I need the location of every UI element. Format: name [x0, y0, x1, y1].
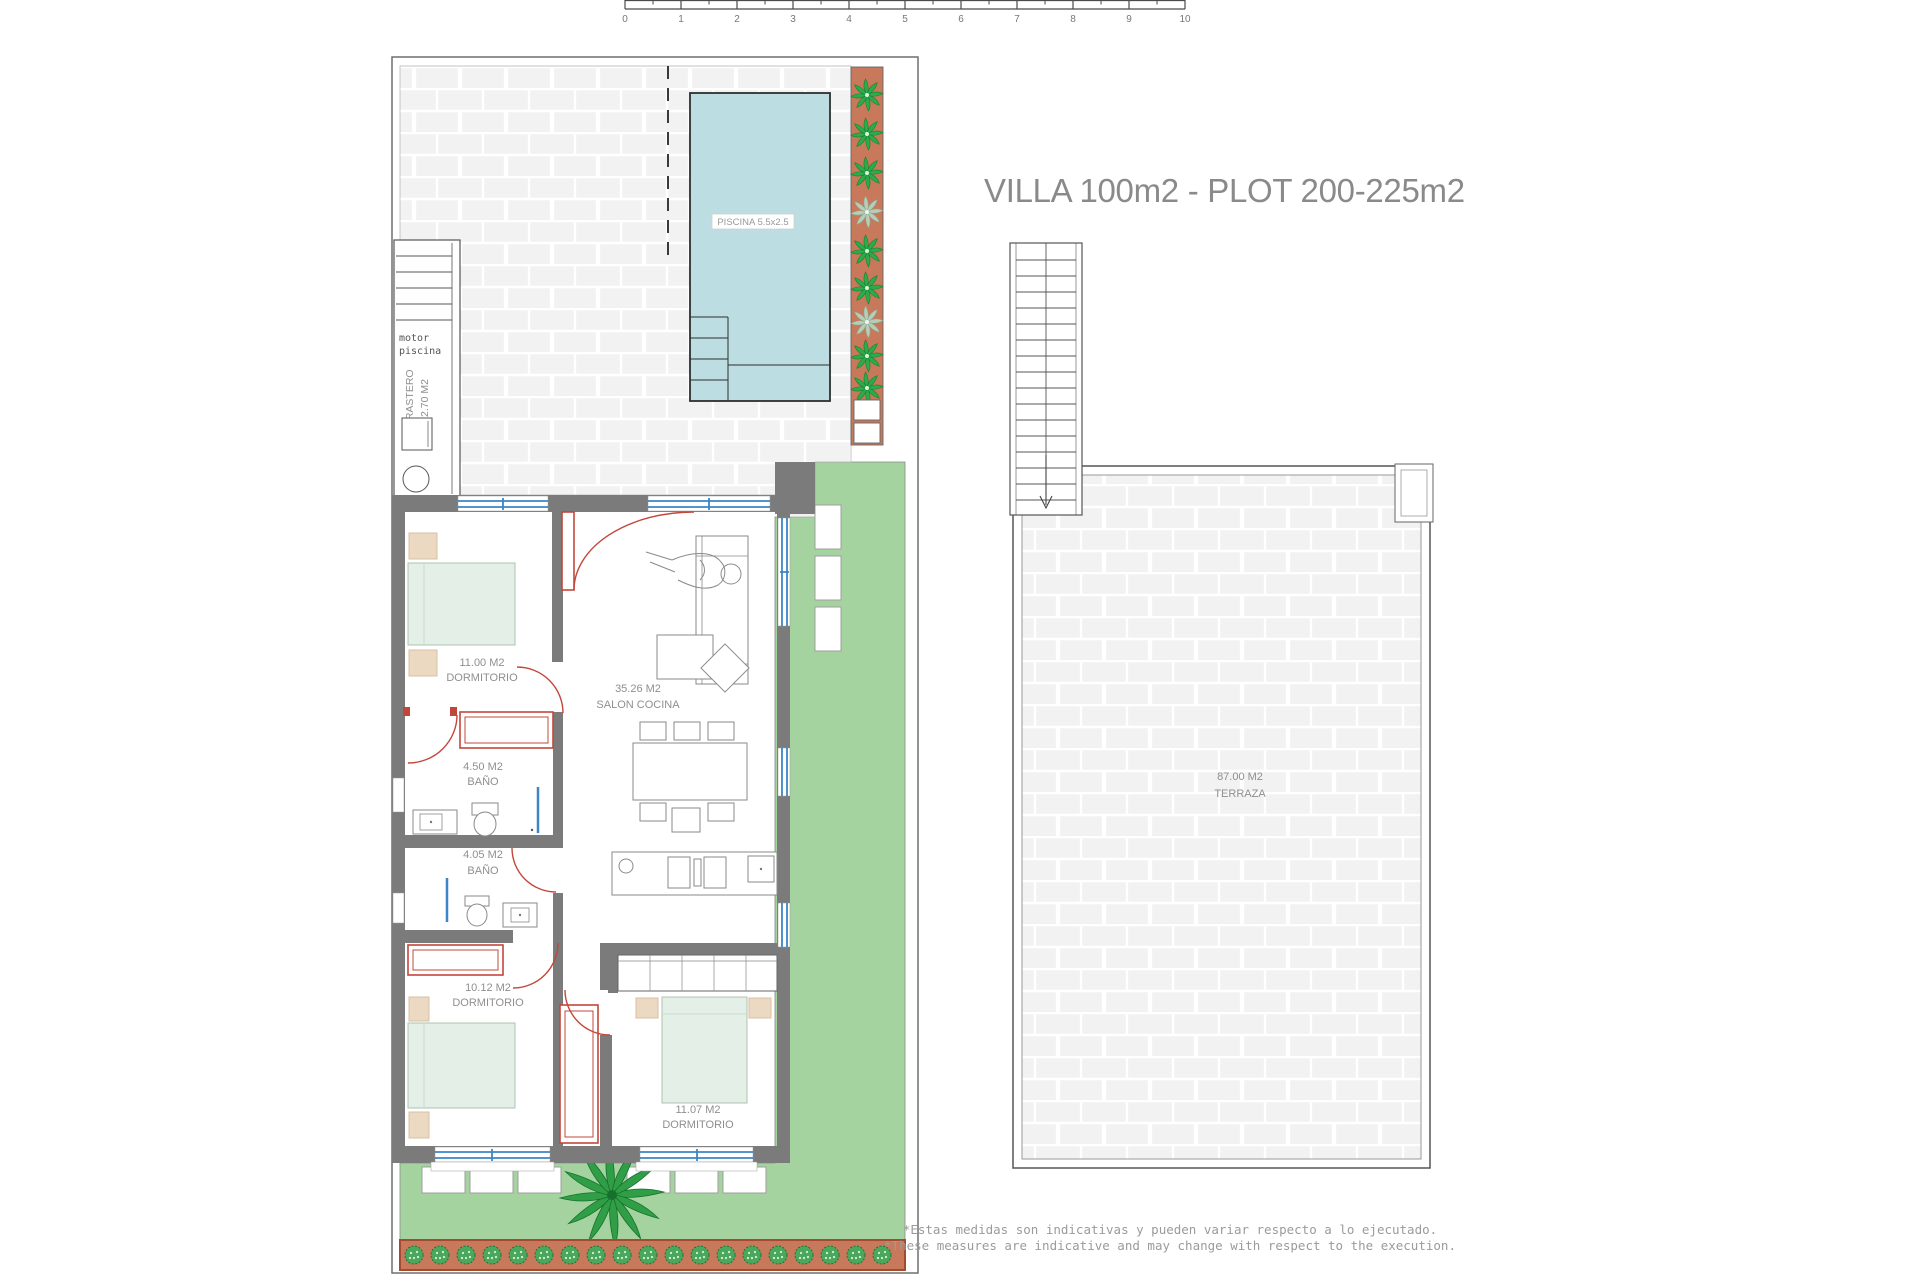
- pool-label: PISCINA 5.5x2.5: [717, 217, 788, 228]
- villa-ground-plan: PISCINA 5.5x2.5 motor piscina TRASTERO 2…: [385, 50, 930, 1280]
- pool-motor-label-2: piscina: [399, 346, 441, 357]
- swimming-pool: PISCINA 5.5x2.5: [690, 93, 830, 401]
- flower-bed: [400, 1240, 905, 1270]
- terrace-staircase: [1010, 243, 1082, 515]
- dining-set: [633, 722, 747, 832]
- svg-text:9: 9: [1126, 14, 1132, 25]
- kitchen-sink: [619, 859, 633, 873]
- terrace-entry-step: [1395, 464, 1433, 522]
- terrace-area: 87.00 M2: [1217, 771, 1263, 783]
- bath1-name: BAÑO: [467, 775, 499, 788]
- living-name: SALON COCINA: [596, 699, 680, 711]
- bedroom2-area: 10.12 M2: [465, 982, 511, 994]
- living-area: 35.26 M2: [615, 683, 661, 695]
- window-bath2: [393, 893, 404, 923]
- bedroom3-nightstand: [636, 998, 658, 1018]
- entry-door-leaf: [562, 512, 574, 590]
- terrace: 87.00 M2 TERRAZA: [1013, 464, 1433, 1168]
- bath1-area: 4.50 M2: [463, 761, 503, 773]
- pool-motor-label-1: motor: [399, 333, 429, 344]
- bedroom3-area: 11.07 M2: [675, 1104, 720, 1116]
- window-bedroom2: [431, 1147, 554, 1171]
- svg-text:10: 10: [1179, 14, 1191, 25]
- bedroom1-name: DORMITORIO: [446, 672, 518, 684]
- bedroom1-nightstand: [409, 533, 437, 559]
- bedroom3-bed: [662, 997, 747, 1103]
- pool-filter: [403, 466, 429, 492]
- window-bedroom3: [636, 1147, 757, 1171]
- window-east-mid: [778, 748, 790, 796]
- svg-text:5: 5: [902, 14, 908, 25]
- scale-bar-numbers: 0 1 2 3 4 5 6 7 8 9 10: [622, 14, 1191, 25]
- window-bath1: [393, 778, 404, 812]
- svg-text:4: 4: [846, 14, 852, 25]
- scale-bar-ruler: [625, 0, 1185, 9]
- bedroom2-nightstand: [409, 1112, 429, 1138]
- bath2-name: BAÑO: [467, 864, 499, 877]
- svg-text:8: 8: [1070, 14, 1076, 25]
- roof-terrace-plan: 87.00 M2 TERRAZA: [1000, 235, 1445, 1180]
- coffee-table: [657, 635, 713, 679]
- dining-table: [633, 743, 747, 800]
- floorplan-sheet: 0 1 2 3 4 5 6 7 8 9 10 VILLA 100m2 - PLO…: [0, 0, 1920, 1280]
- scale-bar: 0 1 2 3 4 5 6 7 8 9 10: [612, 0, 1202, 30]
- planter-step: [854, 423, 880, 443]
- disclaimer: *Estas medidas son indicativas y pueden …: [860, 1222, 1480, 1254]
- planter-strip: [851, 67, 883, 445]
- svg-text:3: 3: [790, 14, 796, 25]
- window-east-kitchen: [778, 903, 790, 947]
- terrace-name: TERRAZA: [1214, 788, 1266, 800]
- svg-text:2: 2: [734, 14, 740, 25]
- svg-text:0: 0: [622, 14, 628, 25]
- bedroom2-name: DORMITORIO: [452, 997, 524, 1009]
- svg-text:7: 7: [1014, 14, 1020, 25]
- disclaimer-line-en: *These measures are indicative and may c…: [860, 1238, 1480, 1254]
- disclaimer-line-es: *Estas medidas son indicativas y pueden …: [860, 1222, 1480, 1238]
- bedroom1-area: 11.00 M2: [459, 657, 504, 669]
- bath2-area: 4.05 M2: [463, 849, 503, 861]
- bedroom3-nightstand: [749, 998, 771, 1018]
- window-living-north: [648, 496, 770, 511]
- storage-room: motor piscina TRASTERO 2.70 M2: [394, 240, 460, 497]
- planter-step: [854, 400, 880, 420]
- hall-closet: [560, 1005, 598, 1143]
- window-bedroom1: [458, 496, 548, 511]
- svg-text:6: 6: [958, 14, 964, 25]
- pool-motor-unit: [402, 418, 432, 450]
- kitchen-counter: [612, 852, 777, 895]
- bedroom1-nightstand: [409, 650, 437, 676]
- window-living-east: [778, 518, 790, 626]
- storage-area: 2.70 M2: [419, 379, 431, 417]
- bedroom3-name: DORMITORIO: [662, 1119, 734, 1131]
- bedroom2-nightstand: [409, 997, 429, 1021]
- bedroom3-wardrobe: [618, 955, 777, 991]
- svg-text:1: 1: [678, 14, 684, 25]
- plan-title: VILLA 100m2 - PLOT 200-225m2: [984, 172, 1465, 210]
